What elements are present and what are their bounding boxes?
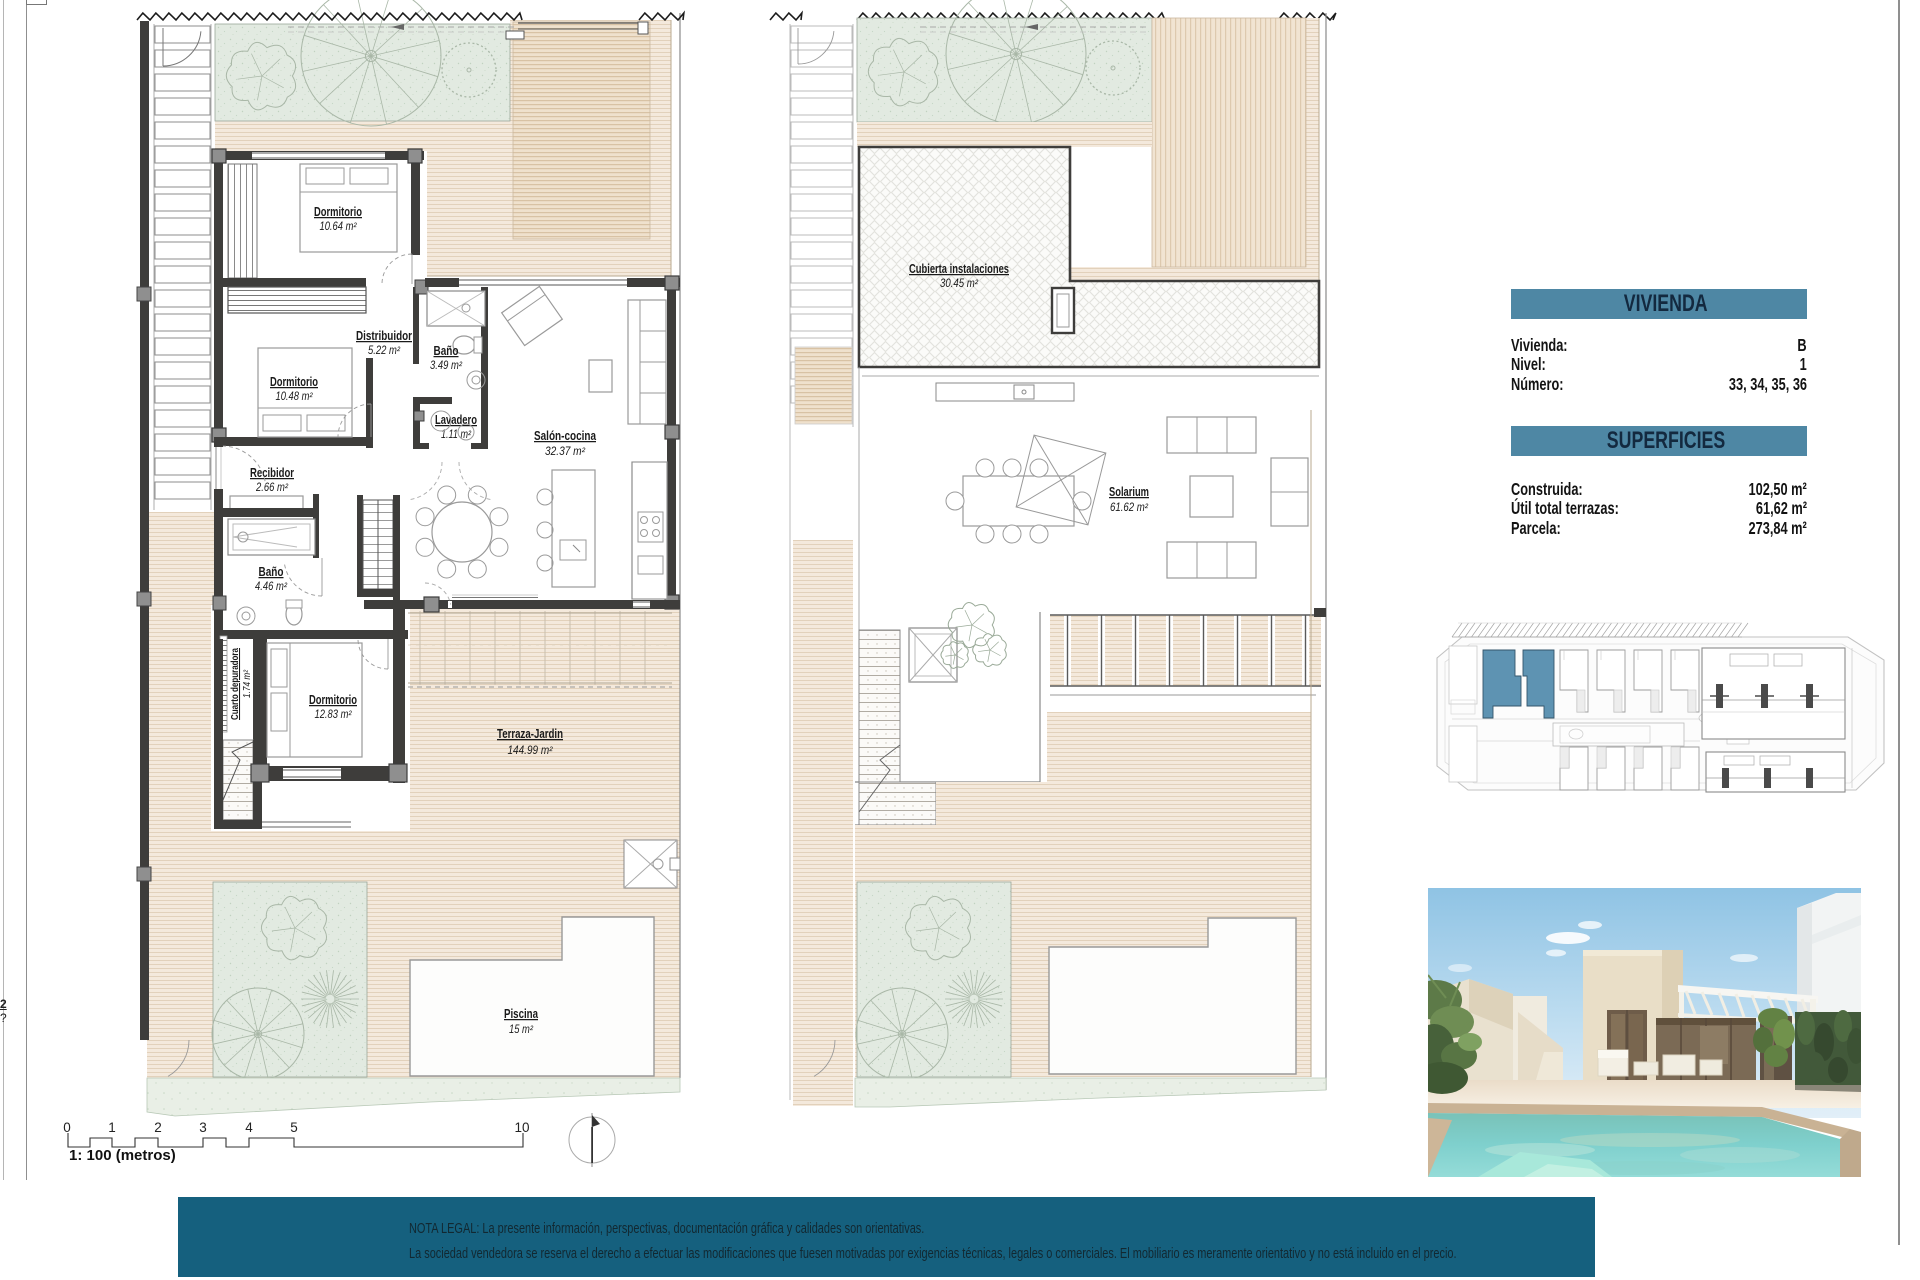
svg-text:Cubierta instalaciones: Cubierta instalaciones: [909, 262, 1009, 276]
svg-text:5.22 m²: 5.22 m²: [368, 345, 401, 357]
svg-text:Terraza-Jardin: Terraza-Jardin: [497, 726, 563, 741]
svg-text:Piscina: Piscina: [504, 1007, 539, 1021]
svg-text:0: 0: [63, 1120, 71, 1135]
svg-text:1.11 m²: 1.11 m²: [441, 429, 472, 441]
svg-text:Salón-cocina: Salón-cocina: [534, 429, 597, 443]
svg-text:30.45 m²: 30.45 m²: [940, 278, 979, 290]
svg-text:3.49 m²: 3.49 m²: [430, 360, 463, 372]
svg-text:5: 5: [290, 1120, 298, 1135]
svg-text:Distribuidor: Distribuidor: [356, 329, 412, 343]
svg-text:Dormitorio: Dormitorio: [270, 375, 318, 389]
svg-text:2: 2: [154, 1120, 162, 1135]
svg-text:61.62 m²: 61.62 m²: [1110, 502, 1149, 514]
svg-text:10.64 m²: 10.64 m²: [320, 221, 358, 233]
svg-text:4.46 m²: 4.46 m²: [255, 581, 288, 593]
svg-text:1: 1: [108, 1120, 116, 1135]
svg-text:Cuarto depuradora: Cuarto depuradora: [229, 648, 241, 720]
svg-text:4: 4: [245, 1120, 253, 1135]
svg-text:Dormitorio: Dormitorio: [309, 693, 357, 707]
svg-text:2.66 m²: 2.66 m²: [255, 482, 289, 494]
svg-text:Lavadero: Lavadero: [435, 413, 477, 427]
svg-text:10.48 m²: 10.48 m²: [276, 391, 314, 403]
svg-text:Solarium: Solarium: [1109, 485, 1149, 499]
svg-text:Baño: Baño: [434, 344, 459, 358]
svg-text:144.99 m²: 144.99 m²: [508, 745, 554, 757]
svg-text:Dormitorio: Dormitorio: [314, 205, 362, 219]
svg-text:12.83 m²: 12.83 m²: [315, 709, 353, 721]
svg-text:1.74 m²: 1.74 m²: [242, 669, 253, 698]
svg-text:15 m²: 15 m²: [509, 1024, 534, 1036]
svg-text:32.37 m²: 32.37 m²: [545, 446, 586, 458]
svg-text:Baño: Baño: [259, 565, 284, 579]
svg-text:3: 3: [199, 1120, 207, 1135]
svg-text:1: 100 (metros): 1: 100 (metros): [69, 1147, 176, 1164]
svg-text:10: 10: [514, 1120, 529, 1135]
svg-text:Recibidor: Recibidor: [250, 466, 294, 480]
